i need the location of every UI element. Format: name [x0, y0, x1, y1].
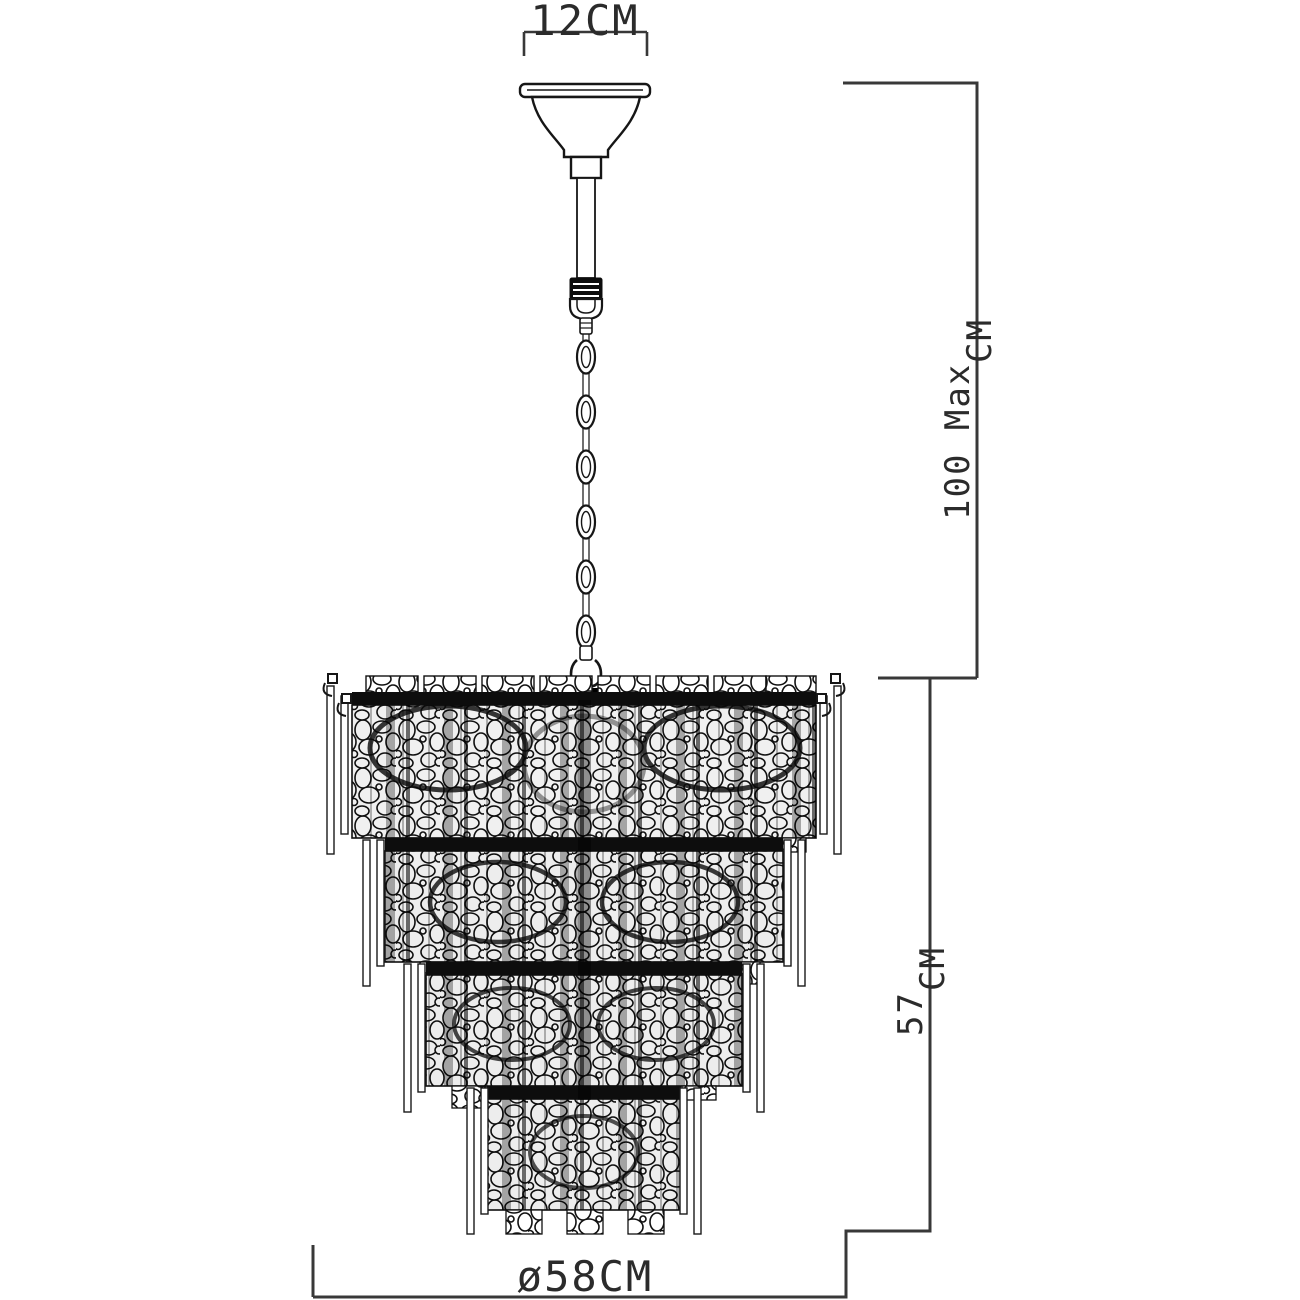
dimension-label-fixture-height: 57 CM — [894, 872, 928, 1036]
canopy-socket — [571, 157, 601, 178]
fixture-height-unit: CM — [916, 946, 950, 991]
fixture-height-value: 57 — [894, 991, 928, 1036]
dimension-label-diameter: ø58CM — [440, 1256, 730, 1298]
connector-cup — [570, 299, 602, 319]
dimension-label-max-drop: 100 Max CM — [941, 240, 975, 520]
tier-4 — [487, 1086, 681, 1234]
max-drop-unit: CM — [963, 318, 997, 363]
ceiling-canopy — [520, 84, 650, 278]
chain-top-pin — [580, 318, 592, 334]
chandelier-body — [324, 674, 845, 1234]
center-column — [578, 700, 591, 1100]
suspension-chain — [571, 318, 601, 704]
tier-4-hanging-strips — [506, 1210, 664, 1234]
max-drop-value: 100 Max — [941, 363, 975, 520]
line-drawing — [0, 0, 1300, 1300]
chandelier-dimension-diagram: 12CM 100 Max CM 57 CM ø58CM — [0, 0, 1300, 1300]
suspension-stem — [577, 178, 595, 278]
canopy-bell — [532, 97, 640, 157]
stem-connector — [570, 278, 602, 319]
chain-bottom-pin — [580, 646, 592, 660]
dimension-label-canopy-width: 12CM — [465, 0, 705, 42]
